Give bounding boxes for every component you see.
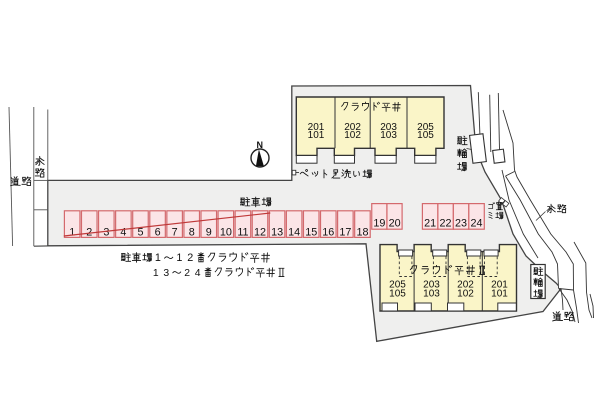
svg-text:1: 1 — [69, 227, 75, 239]
svg-text:17: 17 — [339, 227, 351, 239]
svg-text:7: 7 — [172, 227, 178, 239]
svg-text:24: 24 — [471, 218, 483, 230]
svg-text:19: 19 — [373, 218, 385, 230]
svg-text:10: 10 — [220, 227, 232, 239]
svg-text:9: 9 — [206, 227, 212, 239]
svg-text:5: 5 — [137, 227, 143, 239]
svg-text:1: 1 — [153, 268, 159, 279]
svg-text:1: 1 — [155, 252, 161, 264]
svg-text:6: 6 — [155, 227, 161, 239]
svg-text:101: 101 — [491, 288, 508, 299]
svg-text:4: 4 — [120, 227, 126, 239]
svg-text:2: 2 — [184, 268, 190, 279]
svg-text:18: 18 — [356, 227, 368, 239]
svg-text:102: 102 — [457, 288, 474, 299]
svg-text:103: 103 — [380, 130, 397, 141]
svg-text:103: 103 — [423, 288, 440, 299]
svg-text:16: 16 — [322, 227, 334, 239]
svg-text:14: 14 — [288, 227, 300, 239]
svg-text:11: 11 — [237, 227, 248, 239]
svg-text:3: 3 — [103, 227, 109, 239]
svg-text:2: 2 — [187, 252, 193, 264]
svg-text:102: 102 — [344, 130, 361, 141]
svg-text:8: 8 — [189, 227, 195, 239]
svg-text:15: 15 — [305, 227, 317, 239]
svg-text:N: N — [256, 140, 263, 150]
svg-text:1: 1 — [176, 252, 182, 264]
svg-text:20: 20 — [389, 218, 401, 230]
svg-text:4: 4 — [195, 268, 201, 279]
svg-text:23: 23 — [455, 218, 467, 230]
svg-text:105: 105 — [417, 130, 434, 141]
svg-text:12: 12 — [254, 227, 266, 239]
svg-text:13: 13 — [271, 227, 283, 239]
svg-text:101: 101 — [308, 130, 325, 141]
svg-text:3: 3 — [163, 268, 169, 279]
svg-text:22: 22 — [440, 218, 452, 230]
svg-text:21: 21 — [424, 218, 436, 230]
svg-text:105: 105 — [389, 288, 406, 299]
